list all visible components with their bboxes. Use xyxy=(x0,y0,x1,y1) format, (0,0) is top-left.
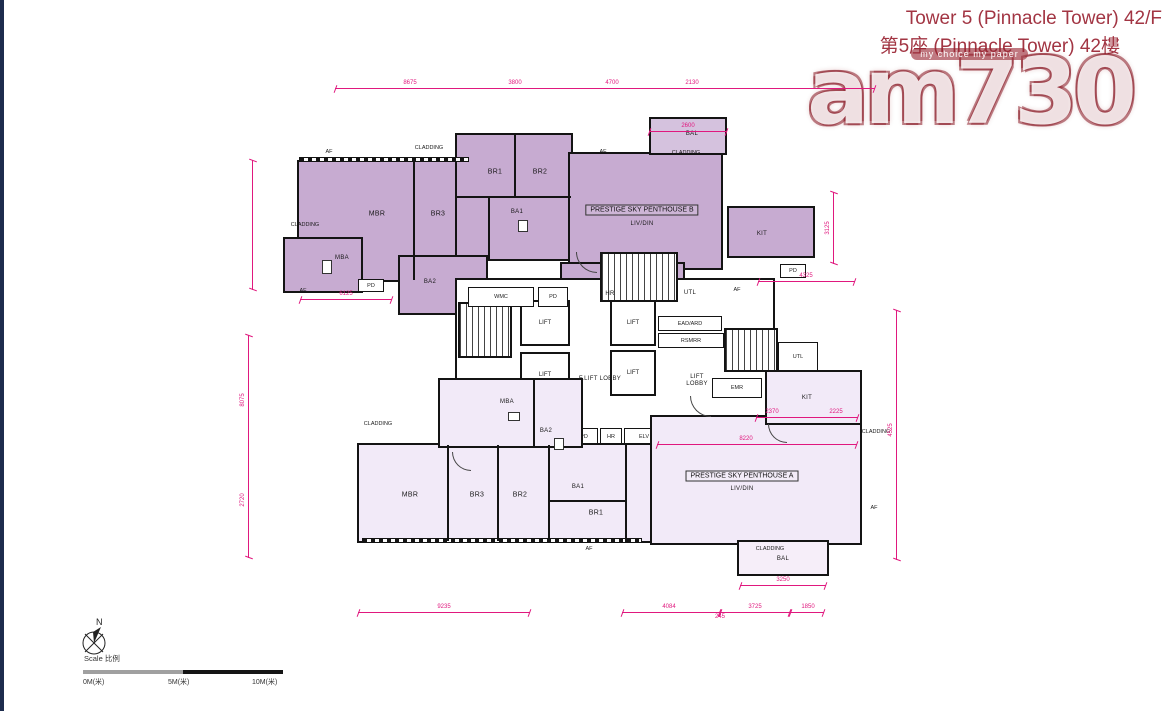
lift-label: LIFT xyxy=(627,370,639,376)
af-marker: AF xyxy=(733,287,740,293)
wall-partition xyxy=(413,162,415,280)
hr-label: HR xyxy=(607,434,615,440)
ead-ard-room: EAD/ARD xyxy=(658,316,722,331)
ead-ard-label: EAD/ARD xyxy=(678,321,702,327)
dimension-line xyxy=(720,612,790,613)
scale-title: Scale 比例 xyxy=(84,653,120,664)
north-arrow: N xyxy=(78,616,112,658)
room-label-mbr-a: MBR xyxy=(402,492,418,499)
cladding-note: CLADDING xyxy=(672,150,700,156)
cladding-note: CLADDING xyxy=(862,429,890,435)
wall-partition xyxy=(548,445,550,541)
dimension-line xyxy=(300,299,392,300)
lift-shaft: LIFT xyxy=(610,300,656,346)
dimension-value: 2720 xyxy=(240,493,246,506)
dimension-line xyxy=(758,281,855,282)
utl-label: UTL xyxy=(793,354,803,360)
dimension-value: 2600 xyxy=(681,123,694,129)
lift-label: LIFT xyxy=(539,320,551,326)
scale-tick-10m: 10M(米) xyxy=(252,677,277,687)
fixture xyxy=(508,412,520,421)
af-marker: AF xyxy=(325,149,332,155)
af-marker: AF xyxy=(585,546,592,552)
dimension-value: 3800 xyxy=(508,80,521,86)
dimension-value: 4525 xyxy=(888,423,894,436)
dimension-value: 2370 xyxy=(765,409,778,415)
room-label-utl-b: UTL xyxy=(684,290,696,296)
rsmrr-room: RSMRR xyxy=(658,333,724,348)
fixture xyxy=(518,220,528,232)
scale-tick-0m: 0M(米) xyxy=(83,677,104,687)
wall-partition xyxy=(488,198,490,259)
scale-tick-5m: 5M(米) xyxy=(168,677,189,687)
penthouse-b-name: PRESTIGE SKY PENTHOUSE B xyxy=(585,205,698,216)
dimension-value: 8075 xyxy=(240,393,246,406)
room-label-br2-b: BR2 xyxy=(533,169,548,176)
room-label-ba2-a: BA2 xyxy=(540,428,552,434)
dimension-line xyxy=(622,612,720,613)
lift-label: LIFT xyxy=(627,320,639,326)
fixture xyxy=(554,438,564,450)
hr-label-top: HR xyxy=(605,291,614,297)
emr-room: EMR xyxy=(712,378,762,398)
af-marker: AF xyxy=(599,149,606,155)
pd-duct: PD xyxy=(358,279,384,292)
staircase xyxy=(458,302,512,358)
cladding-note: CLADDING xyxy=(415,145,443,151)
dimension-line xyxy=(252,160,253,290)
elv-label: ELV xyxy=(639,434,649,440)
penthouse-a-window-band xyxy=(362,538,642,543)
cladding-note: CLADDING xyxy=(291,222,319,228)
watermark: my choice my paper am730 xyxy=(807,36,1132,129)
page-title: Tower 5 (Pinnacle Tower) 42/F xyxy=(906,8,1162,30)
room-label-ba1-a: BA1 xyxy=(572,484,584,490)
dimension-value: 2225 xyxy=(829,409,842,415)
dimension-value: 4084 xyxy=(662,604,675,610)
dimension-value: 3125 xyxy=(825,221,831,234)
dimension-line xyxy=(790,612,824,613)
cladding-note: CLADDING xyxy=(364,421,392,427)
room-label-br3-a: BR3 xyxy=(470,492,485,499)
dimension-line xyxy=(335,88,875,89)
wmc-room: WMC xyxy=(468,287,534,307)
dimension-value: 4700 xyxy=(605,80,618,86)
dimension-value: 8220 xyxy=(739,436,752,442)
cladding-note: CLADDING xyxy=(756,546,784,552)
wall-partition xyxy=(514,135,516,196)
pd-label: PD xyxy=(549,294,557,300)
wmc-label: WMC xyxy=(494,294,508,300)
room-label-mba-a: MBA xyxy=(500,399,514,405)
watermark-logo: am730 xyxy=(807,54,1132,129)
wall-partition xyxy=(457,196,571,198)
room-label-kit-b: KIT xyxy=(757,231,767,237)
dimension-value: 2130 xyxy=(685,80,698,86)
pd-label: PD xyxy=(789,268,797,274)
room-label-bal-a: BAL xyxy=(777,556,789,562)
room-label-ba2-b: BA2 xyxy=(424,279,436,285)
pd-label: PD xyxy=(367,283,375,289)
penthouse-b-window-band xyxy=(299,157,469,162)
wall-partition xyxy=(497,445,499,541)
f-lift-lobby-label: F.LIFT LOBBY xyxy=(579,376,621,382)
room-label-br1-b: BR1 xyxy=(488,169,503,176)
living-label-a: LIV/DIN xyxy=(730,486,753,492)
living-label-b: LIV/DIN xyxy=(630,221,653,227)
north-label: N xyxy=(96,617,103,627)
dimension-value: 4325 xyxy=(799,273,812,279)
dimension-line xyxy=(740,585,826,586)
scale-bar-left xyxy=(83,670,183,674)
dimension-line xyxy=(833,192,834,264)
af-marker: AF xyxy=(870,505,877,511)
room-label-kit-a: KIT xyxy=(802,395,812,401)
penthouse-b-kitchen-block xyxy=(727,206,815,258)
dimension-value: 3250 xyxy=(776,577,789,583)
staircase xyxy=(724,328,778,372)
scale-bar-right xyxy=(183,670,283,674)
rsmrr-label: RSMRR xyxy=(681,338,701,344)
room-label-br2-a: BR2 xyxy=(513,492,528,499)
lift-lobby-label: LIFT LOBBY xyxy=(681,374,713,388)
dimension-value: 9235 xyxy=(437,604,450,610)
room-label-br1-a: BR1 xyxy=(589,510,604,517)
dimension-line xyxy=(248,335,249,558)
wall-partition xyxy=(625,443,627,543)
dimension-line xyxy=(657,444,857,445)
fixture xyxy=(322,260,332,274)
dimension-value: 1850 xyxy=(801,604,814,610)
pd-duct: PD xyxy=(538,287,568,307)
lift-shaft: LIFT xyxy=(610,350,656,396)
room-label-br3-b: BR3 xyxy=(431,211,446,218)
dimension-line xyxy=(896,310,897,560)
dimension-line xyxy=(649,131,727,132)
dimension-line xyxy=(358,612,530,613)
dimension-line xyxy=(756,417,858,418)
watermark-slogan: my choice my paper xyxy=(911,48,1028,60)
wall-partition xyxy=(447,445,449,541)
af-marker: AF xyxy=(299,288,306,294)
room-label-ba1-b: BA1 xyxy=(511,209,523,215)
dimension-value: 8675 xyxy=(403,80,416,86)
dimension-value: 3725 xyxy=(748,604,761,610)
room-label-mbr-b: MBR xyxy=(369,211,385,218)
wall-partition xyxy=(533,380,535,446)
dimension-value: 6125 xyxy=(339,291,352,297)
room-label-mba-b: MBA xyxy=(335,255,349,261)
penthouse-a-name: PRESTIGE SKY PENTHOUSE A xyxy=(686,471,799,482)
page-left-edge xyxy=(0,0,4,711)
wall-partition xyxy=(550,500,627,502)
utl-room-right: UTL xyxy=(778,342,818,372)
emr-label: EMR xyxy=(731,385,743,391)
